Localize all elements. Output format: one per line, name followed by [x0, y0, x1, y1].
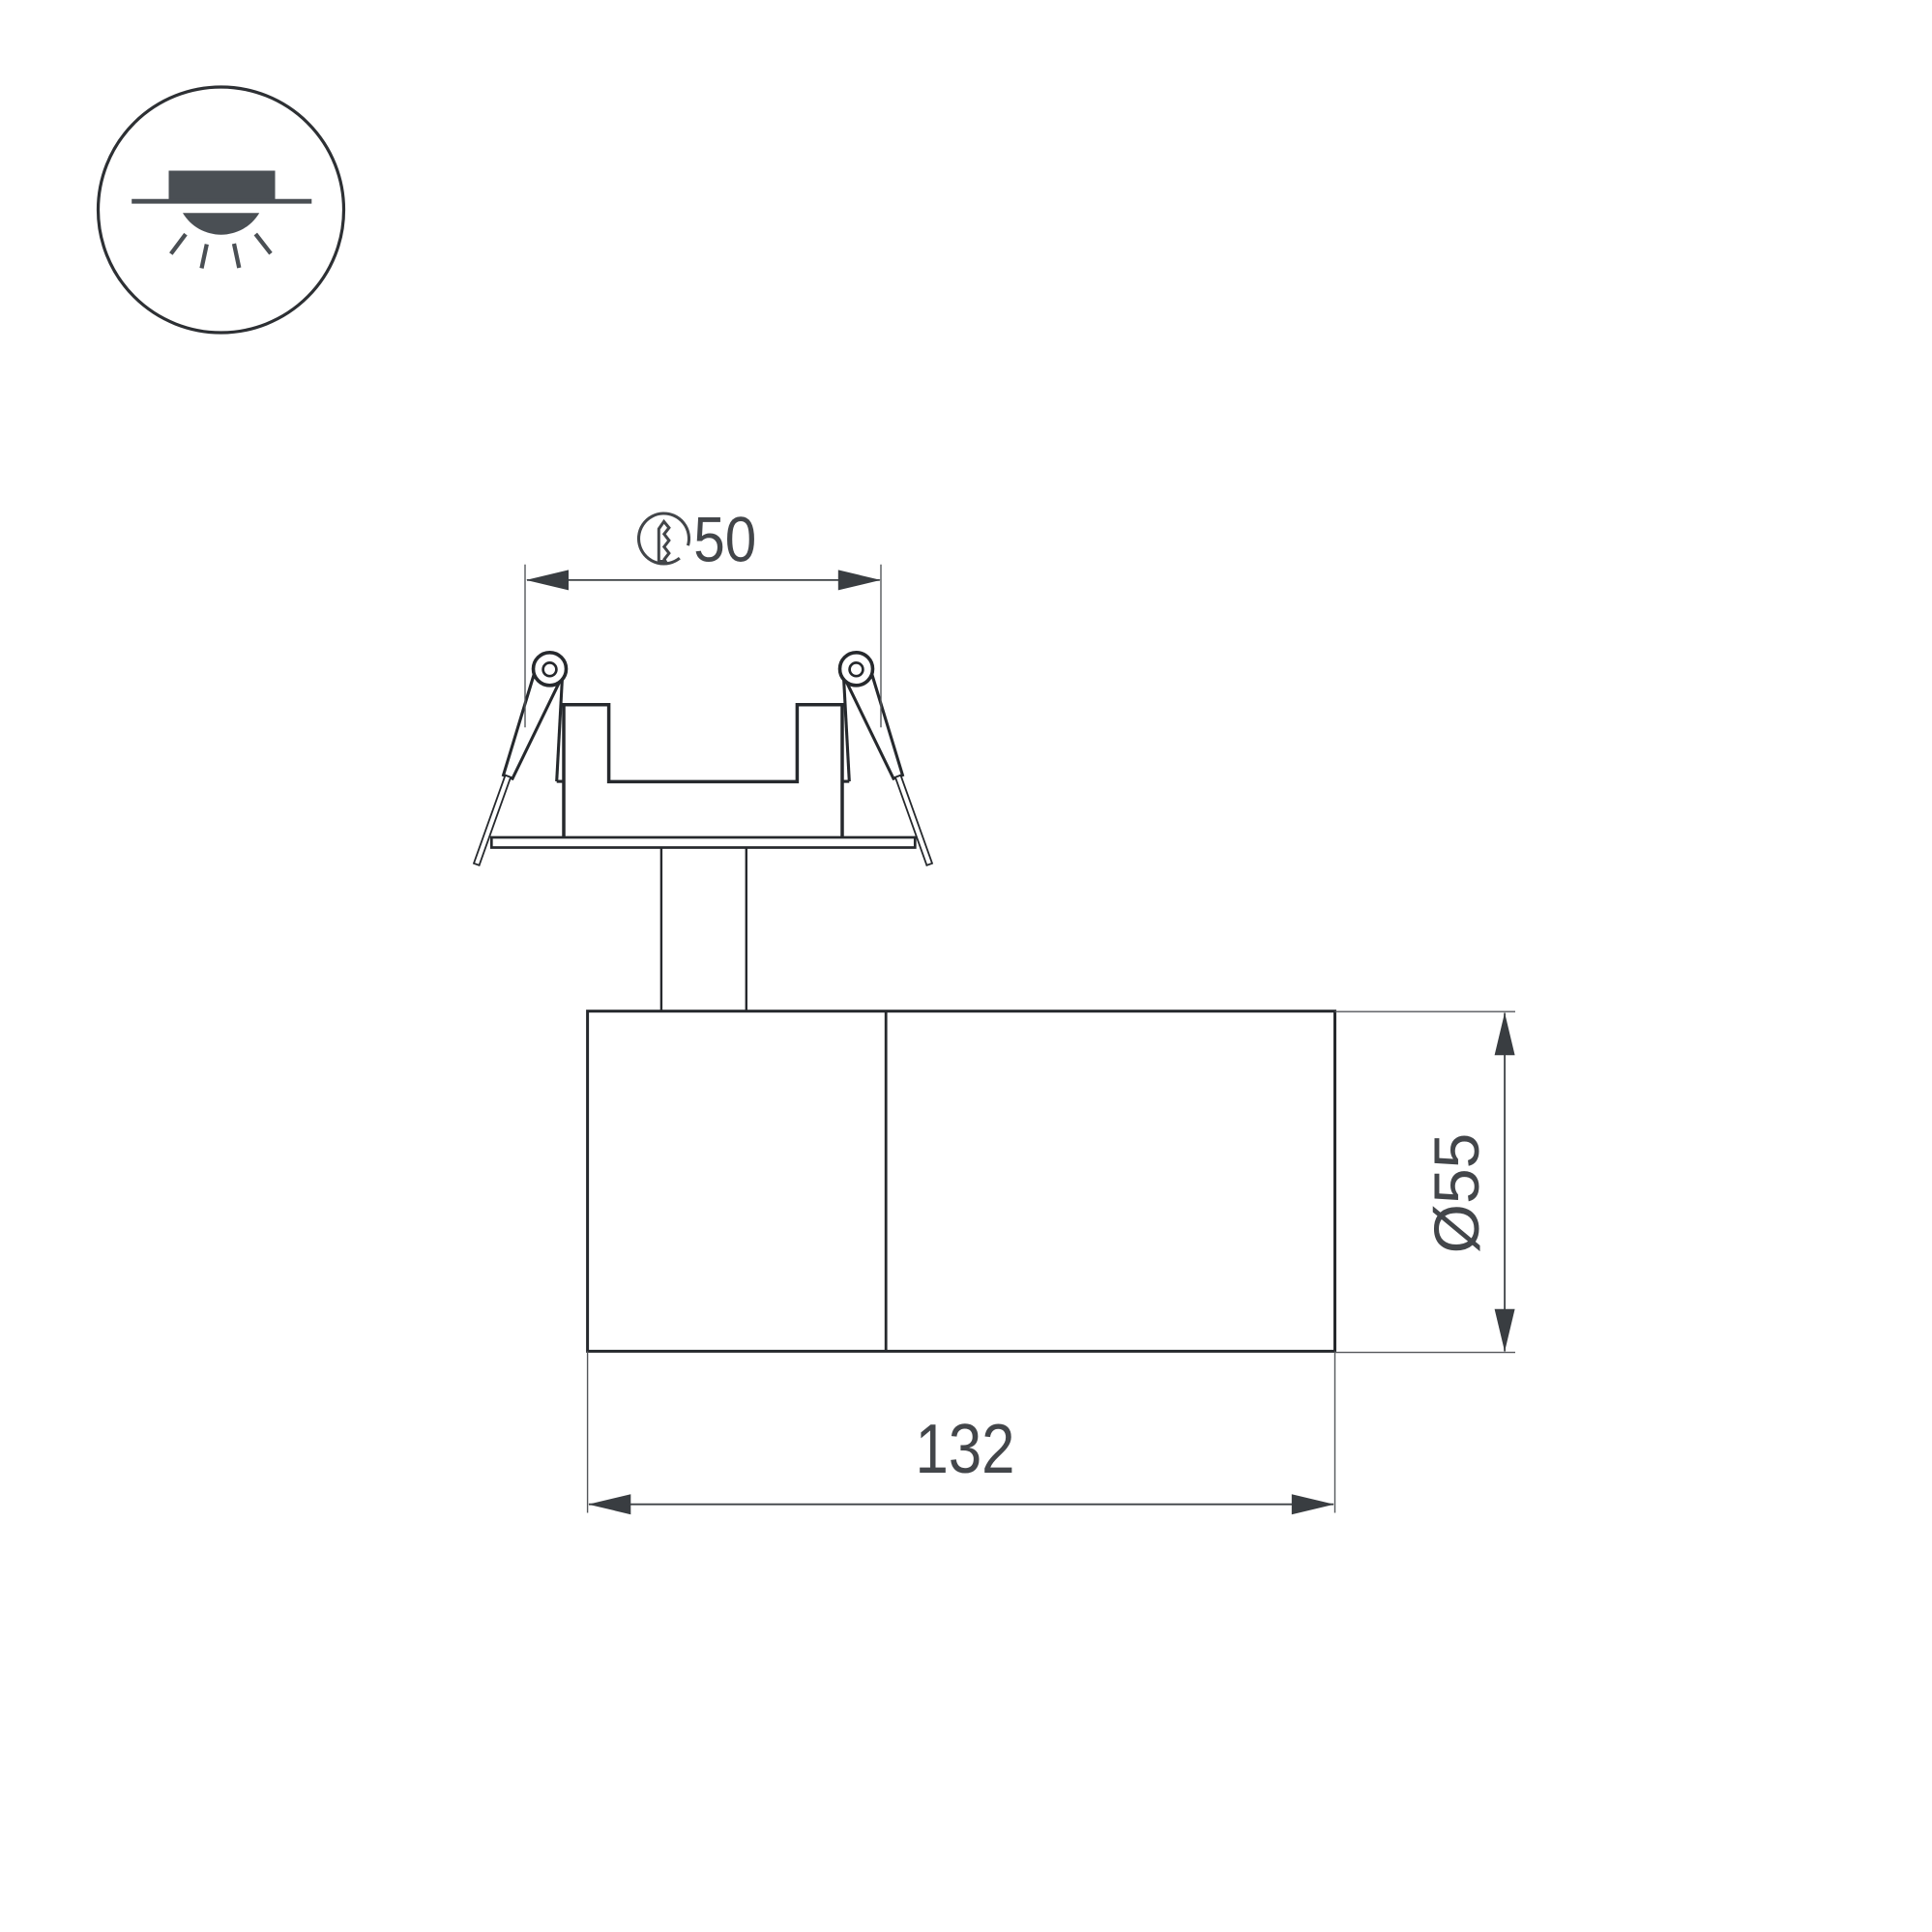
svg-text:132: 132 — [915, 1411, 1014, 1488]
svg-text:Ø55: Ø55 — [1420, 1133, 1492, 1254]
svg-text:50: 50 — [693, 505, 756, 575]
